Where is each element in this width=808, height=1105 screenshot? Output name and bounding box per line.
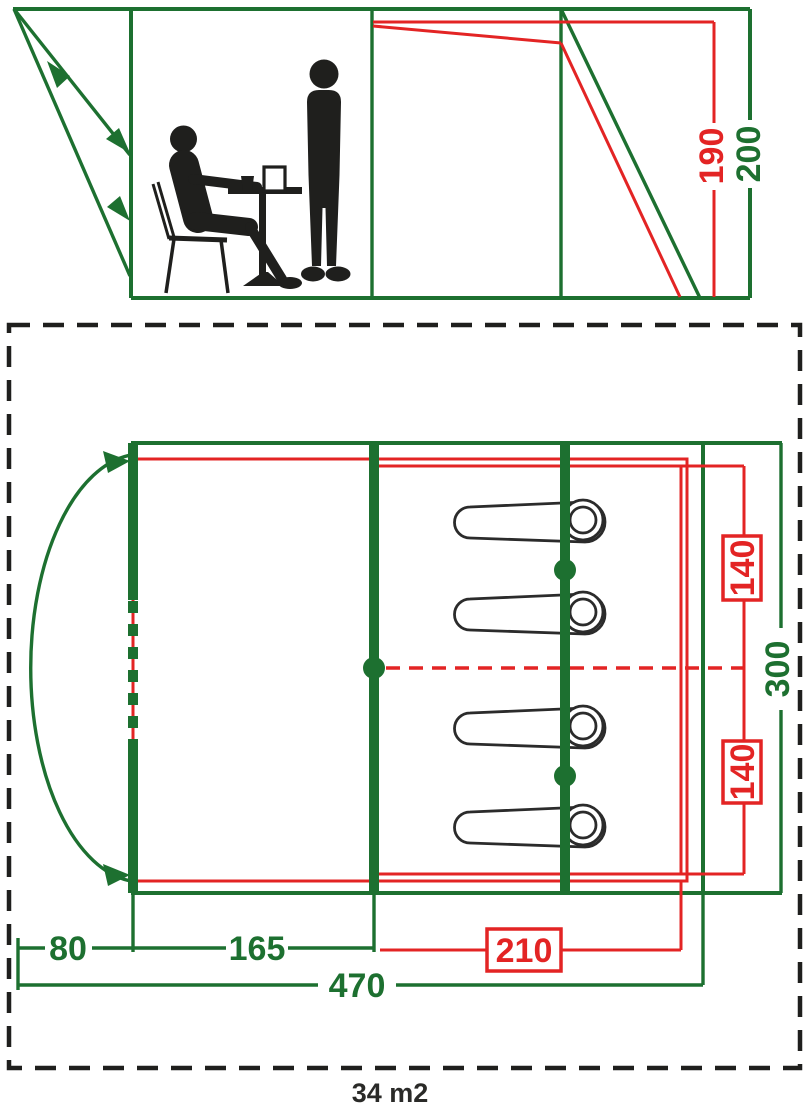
dim-bed-width-bottom: 140 [681, 668, 762, 874]
groundsheet-outline [133, 459, 744, 881]
sitting-person-torso [184, 165, 198, 218]
chair-seat-line [169, 238, 227, 240]
bed-width-top-label: 140 [724, 540, 762, 597]
living-depth-label: 165 [229, 930, 286, 968]
door-mid-line [14, 9, 130, 155]
table-leg [259, 194, 266, 276]
sitting-person-icon [153, 126, 302, 294]
porch-depth-label: 80 [49, 930, 87, 968]
sleeping-bag-icon [455, 592, 606, 634]
dim-living-depth: 165 [133, 893, 374, 968]
sitting-person-thigh [196, 221, 249, 227]
chair-rear-leg [166, 239, 174, 293]
door-swing-arrow-top-icon [103, 451, 130, 473]
cup-icon [241, 176, 254, 191]
sitting-person-foot [278, 277, 302, 289]
inner-rear-line [561, 43, 680, 297]
inner-ceiling-line [373, 26, 561, 43]
sitting-person-head [170, 126, 197, 153]
total-length-label: 470 [329, 967, 386, 1005]
elevation-view: 190 200 [13, 9, 768, 298]
pole-hub-icon [363, 657, 385, 679]
diagram-canvas: 190 200 [0, 0, 808, 1105]
chair-front-leg [221, 240, 228, 293]
inner-tent-profile [373, 22, 714, 297]
front-door-bar [31, 443, 133, 893]
dim-bed-width-top: 140 [681, 466, 762, 668]
sleeping-bag-icon [455, 805, 606, 847]
outer-height-label: 200 [730, 126, 768, 183]
floor-plan-view: 140 140 300 80 [9, 325, 800, 1105]
standing-person-foot-right [326, 267, 351, 282]
pole-hub-icon [554, 765, 576, 787]
dim-outer-height: 200 [730, 126, 768, 183]
tent-side-outline [13, 9, 750, 298]
door-swing-arc [31, 455, 131, 881]
dim-total-width: 300 [759, 443, 797, 893]
standing-person-icon [301, 60, 351, 282]
total-width-label: 300 [759, 641, 797, 698]
area-label: 34 m2 [352, 1078, 429, 1105]
dim-inner-height: 190 [693, 22, 731, 297]
sleeping-bags [455, 500, 606, 847]
front-door-fold-lines [14, 9, 130, 276]
standing-person-foot-left [301, 267, 325, 282]
dim-porch-depth: 80 [18, 893, 133, 990]
sleeping-bag-icon [455, 500, 606, 542]
standing-person-head [310, 60, 339, 89]
sleeping-bag-icon [455, 706, 606, 748]
tent-dimension-diagram: 190 200 [0, 0, 808, 1105]
pole-hub-icon [554, 559, 576, 581]
bedroom-depth-label: 210 [496, 932, 553, 970]
inner-height-label: 190 [693, 128, 731, 185]
rear-slope-line [561, 9, 700, 298]
bed-width-bottom-label: 140 [724, 744, 762, 801]
door-swing-arrow-bottom-icon [103, 864, 130, 886]
standing-person-body [307, 90, 341, 266]
mug-icon [264, 167, 285, 191]
fold-arrow-down2-icon [107, 196, 130, 221]
